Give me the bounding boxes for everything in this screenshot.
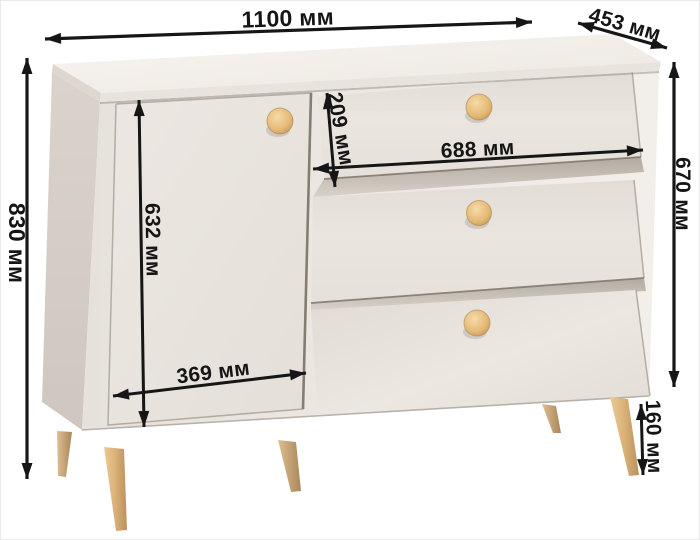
- arrowhead: [22, 463, 33, 479]
- cabinet: [42, 34, 661, 531]
- dimension-width-label: 1100 мм: [241, 3, 334, 32]
- dimension-door-height-label: 632 мм: [140, 203, 164, 277]
- dimension-drawer-width-label: 688 мм: [440, 136, 515, 163]
- arrowhead: [22, 58, 33, 74]
- drawer-3-knob: [464, 310, 490, 336]
- dimension-diagram: 1100 мм 453 мм 830 мм 670 мм: [0, 0, 700, 540]
- dimension-leg-height: 160 мм: [636, 400, 666, 475]
- arrowhead: [516, 17, 532, 28]
- leg-back-left: [57, 431, 72, 477]
- dimension-leg-height-label: 160 мм: [641, 400, 667, 475]
- dimension-height: 830 мм: [4, 58, 33, 479]
- dimension-drawer-column-height: 670 мм: [669, 62, 695, 387]
- leg-front-right: [610, 397, 639, 476]
- leg-back-right: [542, 404, 561, 433]
- drawer-2-knob: [467, 201, 492, 226]
- drawer-3: [311, 290, 650, 416]
- dimension-width: 1100 мм: [45, 3, 532, 43]
- leg-middle: [278, 440, 301, 492]
- arrowhead: [45, 33, 61, 44]
- diagram-canvas: 1100 мм 453 мм 830 мм 670 мм: [0, 0, 700, 540]
- leg-front-left: [104, 447, 127, 531]
- dimension-drawer-column-height-label: 670 мм: [671, 157, 694, 231]
- arrowhead: [669, 62, 680, 78]
- drawer-1-knob: [466, 94, 492, 120]
- dimension-height-label: 830 мм: [4, 203, 30, 284]
- door-knob: [267, 108, 293, 134]
- arrowhead: [669, 371, 680, 387]
